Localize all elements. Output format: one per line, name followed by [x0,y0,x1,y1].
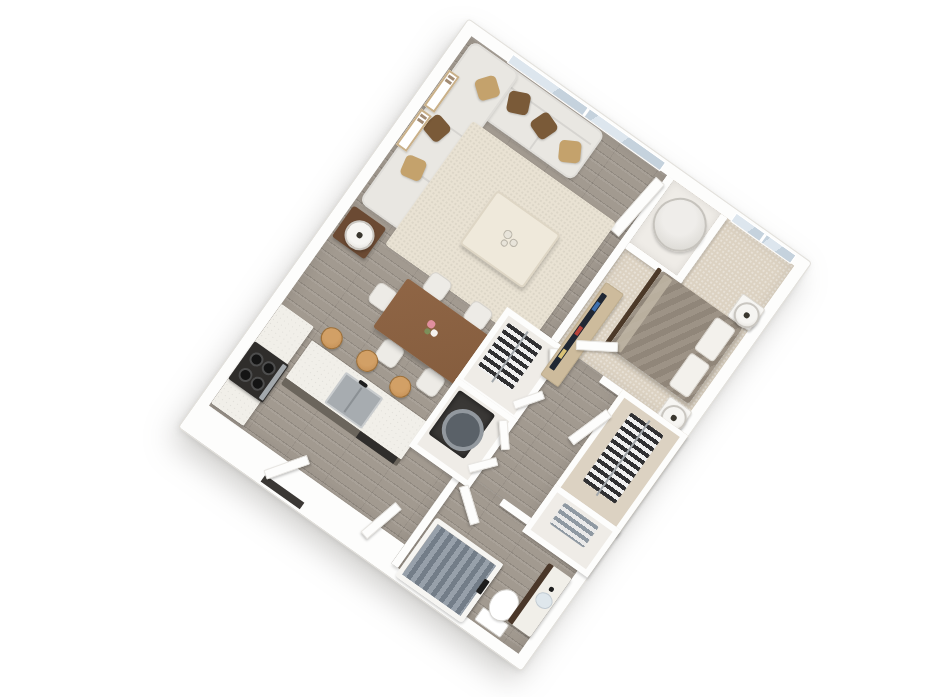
window-mullion [759,233,767,242]
vanity-faucet [548,586,555,593]
floorplan-stage [0,0,929,697]
lamp-finial [355,231,363,239]
flower-centerpiece [429,328,439,338]
washer-door-ring [433,401,492,460]
tv-picture [558,348,567,358]
window-mullion [582,108,590,117]
tv-picture [574,326,583,336]
throw-pillow [558,140,582,164]
candle [499,238,509,248]
candle [508,237,519,248]
lamp-finial [670,414,678,422]
throw-pillow [506,90,532,116]
floorplan-3d-render [179,20,811,671]
tv-picture [592,301,601,311]
lamp-finial [743,311,751,319]
sink-divider [343,387,362,413]
stacked-towels [550,502,599,548]
